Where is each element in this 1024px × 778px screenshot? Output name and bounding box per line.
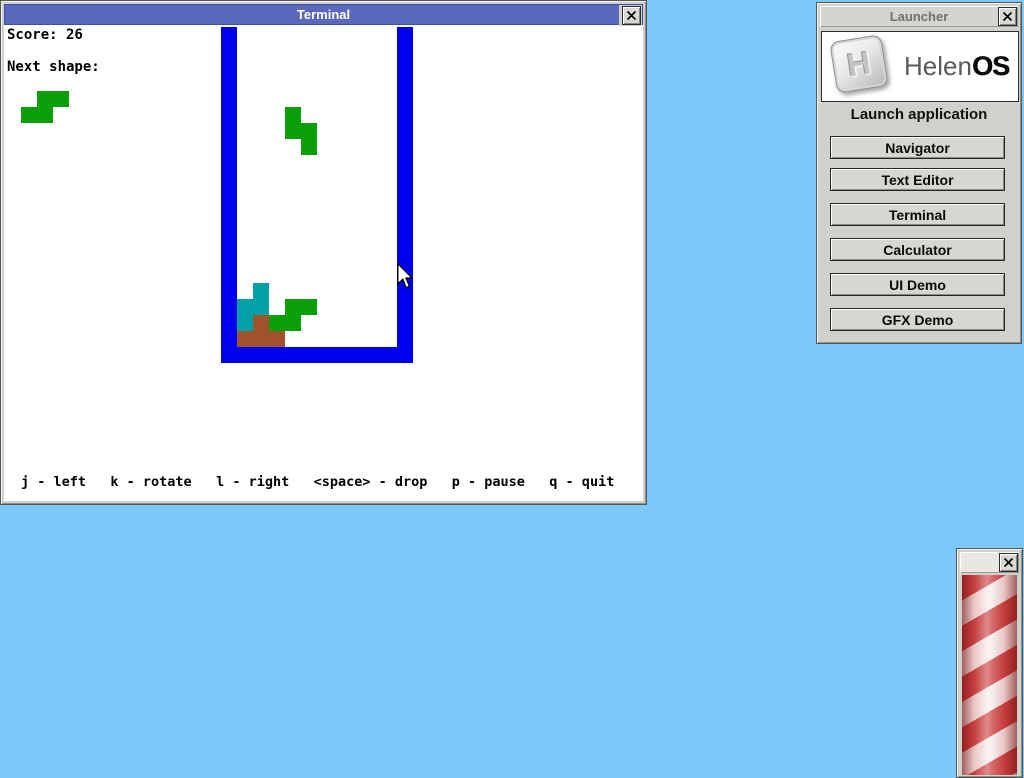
- terminal-titlebar[interactable]: Terminal: [4, 4, 643, 25]
- logo-text-bold: OS: [972, 51, 1009, 82]
- close-icon: [1001, 10, 1014, 23]
- launcher-button-calculator[interactable]: Calculator: [830, 238, 1005, 261]
- gfx-demo-window: [956, 548, 1023, 778]
- helenos-badge-icon: H: [829, 34, 888, 93]
- close-icon: [1002, 556, 1015, 569]
- launcher-button-navigator[interactable]: Navigator: [830, 136, 1005, 159]
- terminal-close-button[interactable]: [622, 6, 641, 25]
- close-icon: [625, 9, 638, 22]
- helenos-wordmark: HelenOS: [904, 32, 1009, 101]
- launcher-title: Launcher: [890, 9, 949, 24]
- score-text: Score: 26: [7, 27, 83, 43]
- launcher-button-text-editor[interactable]: Text Editor: [830, 168, 1005, 191]
- terminal-title: Terminal: [297, 7, 350, 22]
- barber-pole-image: [962, 575, 1017, 775]
- helenos-logo: H HelenOS: [821, 31, 1019, 102]
- gfx-demo-close-button[interactable]: [999, 553, 1018, 572]
- launcher-close-button[interactable]: [998, 7, 1017, 26]
- help-text: j - left k - rotate l - right <space> - …: [21, 474, 614, 490]
- badge-letter: H: [845, 44, 874, 84]
- launcher-button-terminal[interactable]: Terminal: [830, 203, 1005, 226]
- launcher-button-gfx-demo[interactable]: GFX Demo: [830, 308, 1005, 331]
- launcher-button-ui-demo[interactable]: UI Demo: [830, 273, 1005, 296]
- launcher-window: Launcher H HelenOS Launch application Na…: [816, 2, 1022, 344]
- launcher-titlebar[interactable]: Launcher: [820, 6, 1018, 27]
- terminal-content[interactable]: [4, 25, 643, 501]
- gfx-demo-titlebar[interactable]: [960, 552, 1019, 573]
- terminal-window: Terminal Score: 26 Next shape: j - left …: [0, 0, 647, 505]
- launch-application-label: Launch application: [817, 106, 1021, 123]
- logo-text-light: Helen: [904, 51, 972, 82]
- next-shape-label: Next shape:: [7, 59, 100, 75]
